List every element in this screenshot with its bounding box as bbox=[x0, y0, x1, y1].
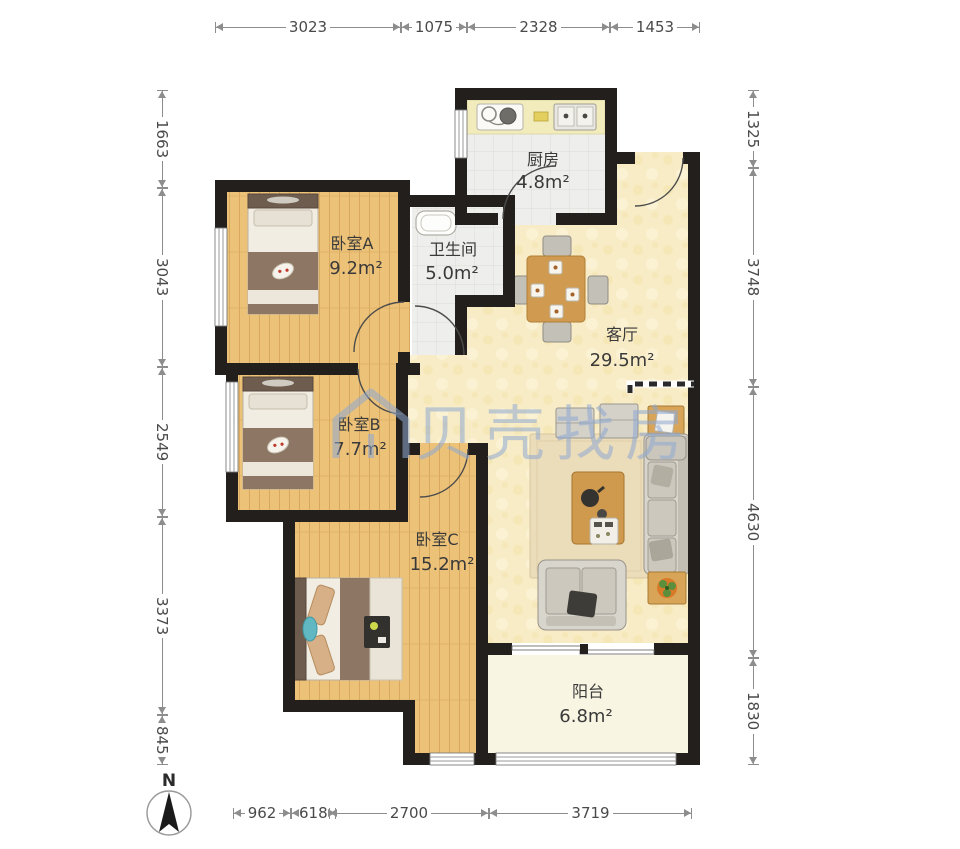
kitchen-counter bbox=[467, 100, 605, 134]
bedroom-b-area: 7.7m² bbox=[333, 439, 386, 460]
kitchen-area: 4.8m² bbox=[516, 172, 569, 193]
living-name: 客厅 bbox=[606, 325, 638, 344]
bed-bedroom-c bbox=[294, 578, 402, 680]
sliding-door-balcony bbox=[512, 644, 654, 654]
dim-top-1: 1075 bbox=[401, 20, 467, 34]
balcony-name: 阳台 bbox=[572, 682, 604, 701]
dim-left-0: 1663 bbox=[155, 90, 169, 188]
side-table-plant bbox=[648, 572, 686, 604]
dim-bottom-1: 618 bbox=[291, 806, 329, 820]
dim-left-2: 2549 bbox=[155, 367, 169, 517]
dim-bottom-3: 3719 bbox=[489, 806, 692, 820]
dim-bottom-2: 2700 bbox=[329, 806, 489, 820]
window-bedroom-c bbox=[430, 753, 474, 765]
balcony-floor bbox=[488, 655, 688, 753]
window-bedroom-a bbox=[215, 228, 227, 326]
bedroom-a-area: 9.2m² bbox=[329, 258, 382, 279]
kitchen-basin bbox=[500, 108, 516, 124]
bed-bedroom-b bbox=[243, 377, 313, 489]
bathroom-name: 卫生间 bbox=[429, 240, 477, 259]
window-balcony bbox=[496, 753, 676, 765]
watermark-text: 贝壳找房 bbox=[415, 400, 695, 470]
bathtub bbox=[416, 211, 456, 235]
floor-plan-canvas: 厨房 4.8m² 卫生间 5.0m² 卧室A 9.2m² 卧室B 7.7m² 卧… bbox=[0, 0, 960, 849]
north-compass: N bbox=[147, 771, 191, 835]
bedroom-c-area: 15.2m² bbox=[410, 554, 475, 575]
dim-right-3: 1830 bbox=[746, 658, 760, 765]
bedroom-a-name: 卧室A bbox=[331, 234, 374, 253]
bedroom-c-name: 卧室C bbox=[415, 530, 458, 549]
coffee-table bbox=[572, 472, 624, 544]
window-kitchen bbox=[455, 110, 467, 158]
kitchen-name: 厨房 bbox=[527, 150, 559, 169]
dim-top-0: 3023 bbox=[215, 20, 401, 34]
dim-bottom-0: 962 bbox=[233, 806, 291, 820]
dim-right-0: 1325 bbox=[746, 90, 760, 168]
floor-plan-drawing: 厨房 4.8m² 卫生间 5.0m² 卧室A 9.2m² 卧室B 7.7m² 卧… bbox=[0, 0, 960, 849]
compass-needle bbox=[159, 792, 179, 832]
dim-top-3: 1453 bbox=[610, 20, 700, 34]
bed-bedroom-a bbox=[248, 194, 318, 314]
dim-right-2: 4630 bbox=[746, 387, 760, 658]
living-area: 29.5m² bbox=[590, 350, 655, 371]
balcony-area: 6.8m² bbox=[559, 706, 612, 727]
kitchen-stove bbox=[554, 104, 596, 130]
bathroom-area: 5.0m² bbox=[425, 263, 478, 284]
dim-left-3: 3373 bbox=[155, 517, 169, 715]
dim-right-1: 3748 bbox=[746, 168, 760, 387]
dim-left-4: 845 bbox=[155, 715, 169, 765]
dim-left-1: 3043 bbox=[155, 188, 169, 367]
armchair bbox=[538, 560, 626, 630]
north-label: N bbox=[162, 771, 176, 791]
dim-top-2: 2328 bbox=[467, 20, 610, 34]
window-bedroom-b bbox=[226, 382, 238, 472]
